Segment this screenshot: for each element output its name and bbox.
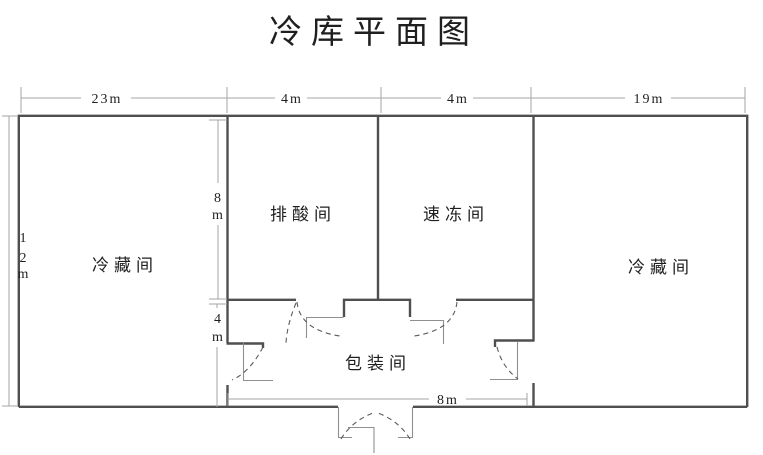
bottom-dimension-label-8m: 8m [437, 393, 459, 408]
door-leaf-freeze-room [410, 321, 444, 345]
entrance-jamb-right [398, 407, 413, 438]
floor-plan-page: 冷库平面图 23m 4m 4m 19m 1 2 m 8 m 4 m 8m 冷藏间… [0, 0, 763, 455]
room-label-packing: 包装间 [345, 354, 411, 373]
dim-label-23m: 23m [92, 92, 123, 107]
svg-text:4: 4 [214, 312, 221, 327]
door-swing-acid-room-corner [286, 303, 296, 343]
room-label-quick-freeze: 速冻间 [423, 205, 489, 224]
entrance-jamb-left [339, 407, 353, 438]
entrance-center-leaf [348, 428, 374, 454]
room-labels: 冷藏间 排酸间 速冻间 冷藏间 包装间 [92, 205, 694, 373]
dim-label-4m-right: 4m [447, 92, 469, 107]
svg-text:8: 8 [214, 191, 221, 206]
drawing-title: 冷库平面图 [269, 14, 479, 51]
door-leaves [244, 318, 518, 454]
dim-label-19m: 19m [634, 92, 665, 107]
svg-text:2: 2 [20, 251, 27, 266]
svg-text:m: m [18, 267, 29, 282]
svg-text:m: m [212, 208, 223, 223]
entrance-swing-left [341, 413, 373, 439]
room-label-right-cold-storage: 冷藏间 [628, 258, 694, 277]
packing-east-wall [495, 341, 535, 348]
door-swing-east [497, 347, 518, 379]
door-swing-freeze-room [414, 302, 457, 336]
door-leaf-east [490, 342, 518, 380]
svg-text:m: m [212, 330, 223, 345]
top-dimension-labels: 23m 4m 4m 19m [92, 92, 665, 107]
room-label-acid-removal: 排酸间 [270, 205, 336, 224]
svg-text:1: 1 [20, 231, 27, 246]
left-dimension-label-12m: 1 2 m [18, 231, 29, 282]
door-swing-acid-room [297, 302, 340, 336]
dim-label-4m-left: 4m [281, 92, 303, 107]
floor-plan-canvas: 冷库平面图 23m 4m 4m 19m 1 2 m 8 m 4 m 8m 冷藏间… [0, 0, 763, 455]
door-leaf-acid-room [307, 318, 344, 339]
middle-dimension-label-8m: 8 m [212, 191, 223, 223]
room-label-left-cold-storage: 冷藏间 [92, 256, 158, 275]
entrance-swing-right [378, 413, 410, 439]
door-leaf-west [244, 343, 274, 381]
packing-north-wall-pier [344, 300, 410, 317]
door-swing-west [232, 347, 263, 380]
packing-west-wall [227, 344, 264, 349]
middle-dimension-label-4m: 4 m [212, 312, 223, 345]
